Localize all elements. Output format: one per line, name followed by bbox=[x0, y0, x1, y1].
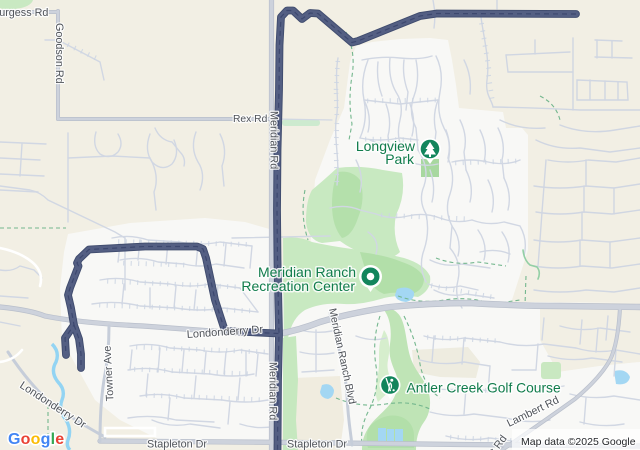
svg-text:Stapleton Dr: Stapleton Dr bbox=[147, 439, 207, 450]
svg-text:Map data ©2025 Google: Map data ©2025 Google bbox=[521, 436, 636, 448]
svg-text:Meridian Rd: Meridian Rd bbox=[267, 362, 279, 420]
svg-text:Park: Park bbox=[385, 151, 415, 167]
svg-text:Recreation Center: Recreation Center bbox=[241, 278, 355, 294]
svg-text:Google: Google bbox=[8, 431, 64, 448]
svg-text:Rex Rd: Rex Rd bbox=[233, 114, 268, 125]
svg-text:Antler Creek Golf Course: Antler Creek Golf Course bbox=[407, 381, 561, 396]
svg-text:Goodson Rd: Goodson Rd bbox=[53, 23, 65, 84]
svg-text:Meridian Rd: Meridian Rd bbox=[268, 111, 280, 169]
svg-text:Stapleton Dr: Stapleton Dr bbox=[287, 439, 347, 450]
svg-text:Burgess Rd: Burgess Rd bbox=[0, 7, 48, 19]
